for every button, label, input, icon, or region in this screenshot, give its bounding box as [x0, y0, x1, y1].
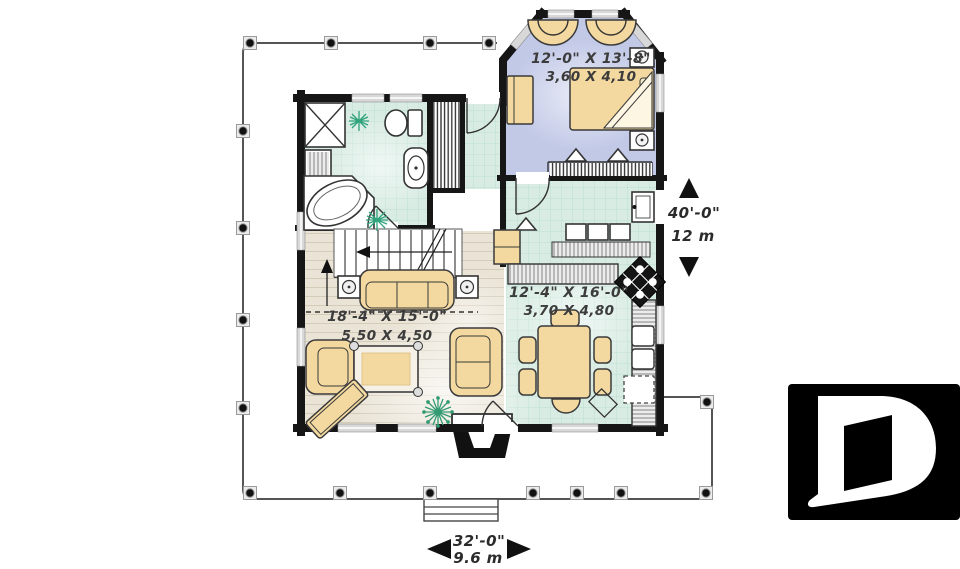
front-steps: [424, 499, 498, 521]
bench-cabinet: [552, 242, 650, 257]
dining-chair: [519, 369, 536, 395]
floor-plan-svg: 12'-0" X 13'-8" 3,60 X 4,10: [0, 0, 960, 569]
snowflake-plant-icon: [366, 209, 388, 231]
depth-imperial: 40'-0": [667, 204, 720, 222]
right-arrow-icon: [507, 539, 531, 559]
depth-metric: 12 m: [671, 227, 714, 245]
width-metric: 9.6 m: [453, 549, 502, 567]
bedroom-dims-imperial: 12'-0" X 13'-8": [531, 51, 651, 67]
dining-table: [538, 326, 590, 398]
dishwasher: [624, 376, 654, 403]
brand-logo: [788, 384, 960, 520]
toilet: [385, 110, 422, 136]
dining-chair: [594, 337, 611, 363]
up-arrow-icon: [679, 178, 699, 198]
corner-shower: [305, 103, 345, 147]
snowflake-plant-icon: [423, 397, 453, 427]
dimension-depth: 40'-0" 12 m: [667, 178, 720, 277]
refrigerator: [494, 230, 520, 264]
dimension-width: 32'-0" 9.6 m: [427, 532, 531, 567]
bedroom-dims-metric: 3,60 X 4,10: [546, 69, 637, 85]
kitchen-counter: [508, 264, 618, 284]
sink: [404, 148, 428, 188]
dresser: [507, 76, 533, 124]
living-dims-metric: 5,50 X 4,50: [342, 328, 433, 344]
width-imperial: 32'-0": [453, 532, 505, 550]
living-dims-imperial: 18'-4" X 15'-0": [327, 309, 447, 325]
sofa: [360, 270, 454, 310]
left-arrow-icon: [427, 539, 451, 559]
down-arrow-icon: [679, 257, 699, 277]
logo-counter: [844, 415, 892, 491]
closet-rod: [433, 102, 460, 188]
side-door: [632, 192, 654, 222]
dining-dims-metric: 3,70 X 4,80: [524, 303, 615, 319]
dining-chair: [594, 369, 611, 395]
dining-dims-imperial: 12'-4" X 16'-0": [509, 285, 629, 301]
loveseat: [450, 328, 502, 396]
floor-plan-canvas: 12'-0" X 13'-8" 3,60 X 4,10: [0, 0, 960, 569]
dining-chair: [519, 337, 536, 363]
snowflake-plant-icon: [349, 111, 369, 131]
walkin-closet: [433, 102, 460, 188]
